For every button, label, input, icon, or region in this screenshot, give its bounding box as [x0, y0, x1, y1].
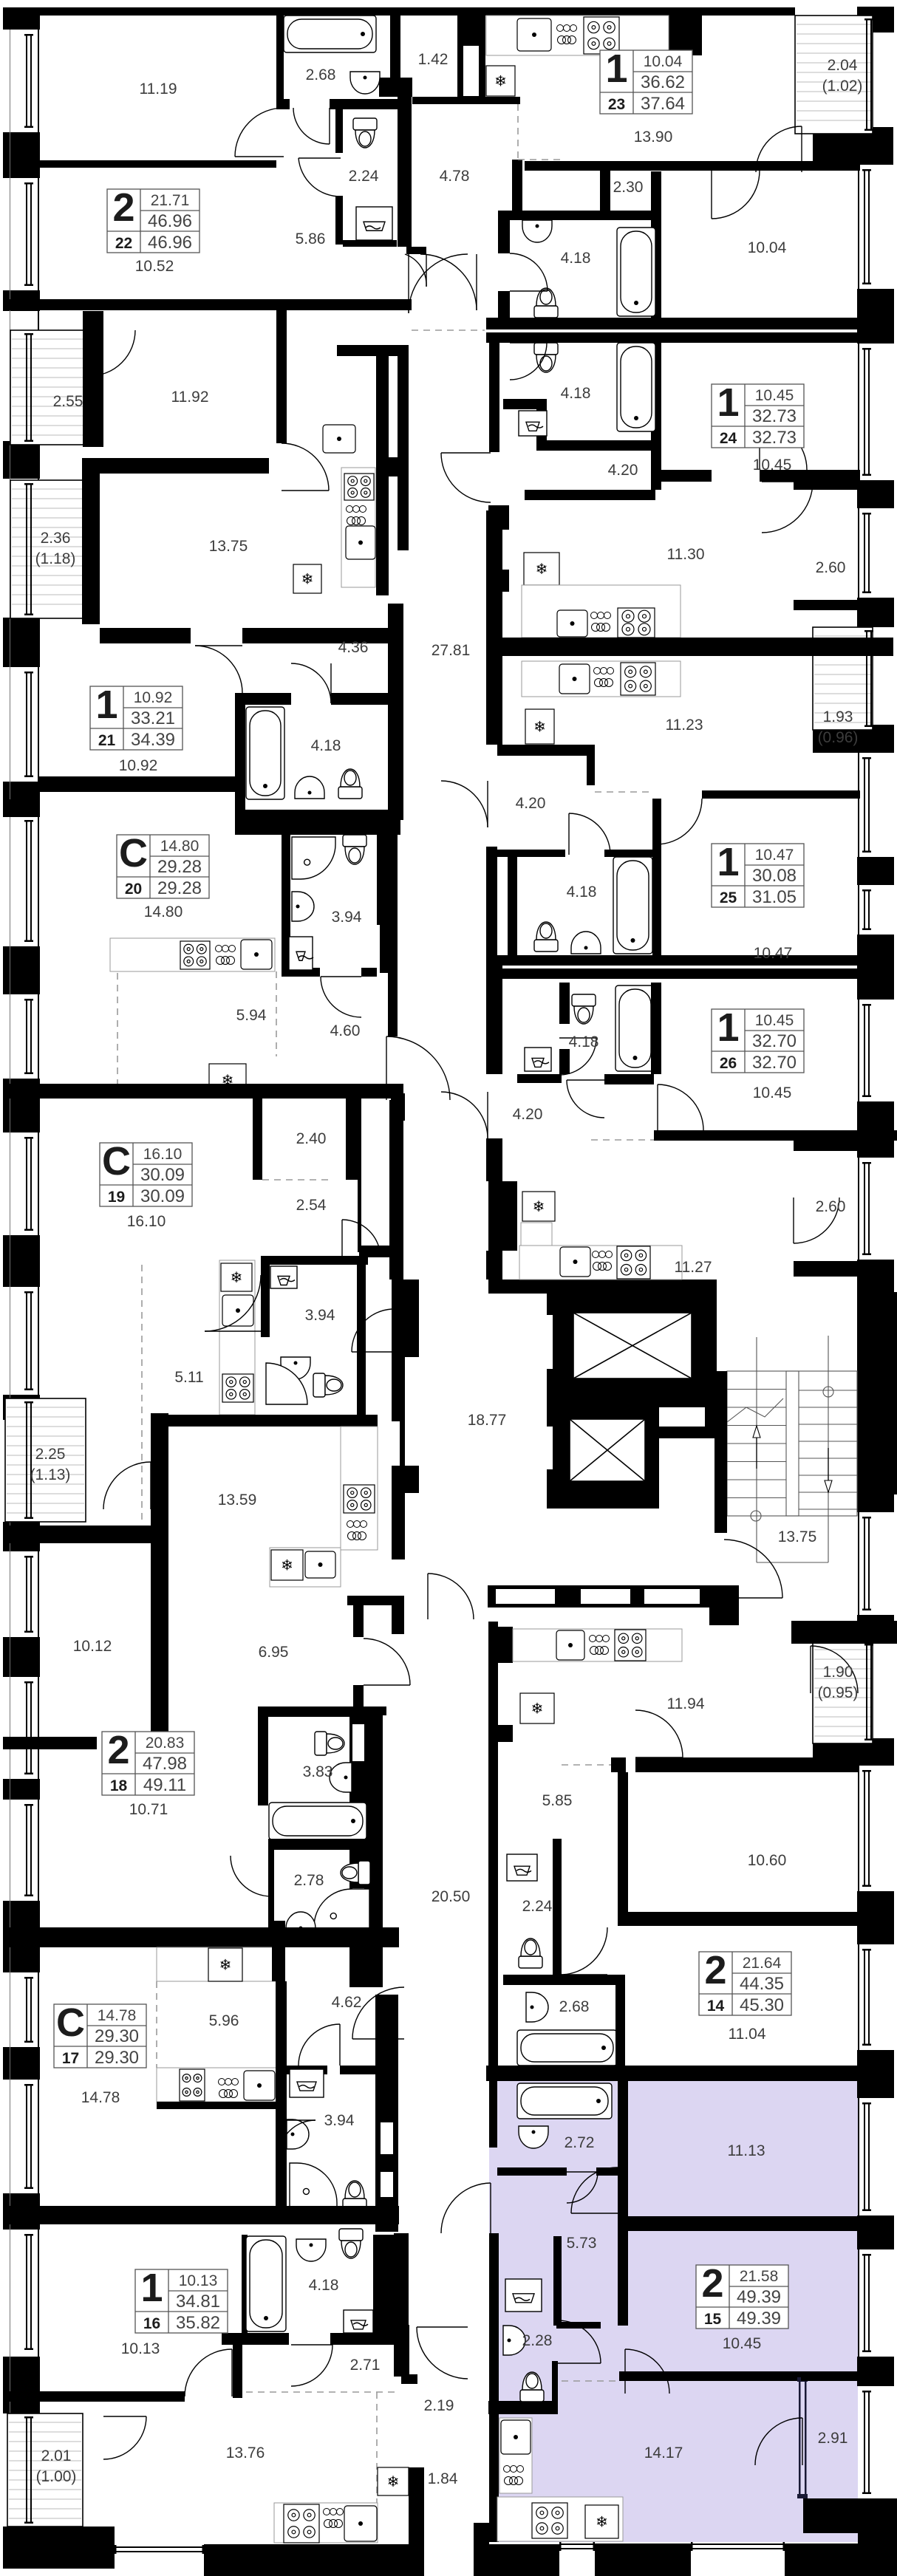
svg-text:11.19: 11.19 — [140, 81, 177, 98]
svg-text:14.78: 14.78 — [98, 2007, 137, 2024]
svg-text:C: C — [102, 1139, 131, 1183]
svg-text:13.76: 13.76 — [226, 2445, 265, 2461]
svg-text:2.40: 2.40 — [296, 1130, 327, 1147]
svg-text:22: 22 — [115, 235, 132, 252]
svg-text:20.50: 20.50 — [432, 1888, 471, 1905]
svg-text:34.39: 34.39 — [131, 730, 175, 750]
svg-text:44.35: 44.35 — [740, 1974, 784, 1994]
svg-text:5.94: 5.94 — [236, 1007, 267, 1024]
svg-text:2.60: 2.60 — [816, 559, 846, 576]
svg-text:(1.18): (1.18) — [35, 550, 76, 567]
svg-text:2.55: 2.55 — [53, 393, 83, 410]
svg-text:36.62: 36.62 — [641, 72, 685, 92]
svg-text:1: 1 — [95, 683, 117, 727]
svg-text:2.28: 2.28 — [522, 2332, 553, 2349]
svg-text:13.75: 13.75 — [778, 1528, 817, 1545]
svg-text:19: 19 — [108, 1189, 125, 1206]
svg-text:49.39: 49.39 — [737, 2309, 781, 2329]
svg-text:10.45: 10.45 — [723, 2335, 762, 2352]
svg-text:18: 18 — [110, 1777, 128, 1794]
svg-text:4.18: 4.18 — [311, 737, 341, 754]
svg-text:21.71: 21.71 — [151, 192, 190, 209]
svg-text:10.04: 10.04 — [644, 53, 683, 70]
svg-text:C: C — [56, 2001, 85, 2045]
svg-text:20.83: 20.83 — [146, 1735, 185, 1752]
svg-text:4.20: 4.20 — [608, 462, 638, 479]
svg-text:5.11: 5.11 — [174, 1369, 203, 1386]
svg-text:47.98: 47.98 — [143, 1754, 187, 1774]
svg-text:3.94: 3.94 — [305, 1307, 335, 1324]
svg-text:10.47: 10.47 — [755, 847, 794, 864]
svg-text:(1.02): (1.02) — [822, 78, 863, 95]
svg-text:3.83: 3.83 — [303, 1763, 333, 1780]
svg-text:2.24: 2.24 — [522, 1898, 553, 1915]
svg-text:10.47: 10.47 — [754, 945, 793, 962]
svg-text:❄: ❄ — [219, 1958, 232, 1974]
svg-text:5.96: 5.96 — [209, 2012, 239, 2029]
svg-text:11.30: 11.30 — [667, 546, 705, 563]
svg-text:10.45: 10.45 — [753, 457, 792, 474]
svg-text:(1.13): (1.13) — [30, 1466, 71, 1483]
svg-text:2.30: 2.30 — [613, 179, 644, 196]
svg-text:1.90: 1.90 — [823, 1664, 853, 1681]
svg-text:2: 2 — [701, 2261, 723, 2306]
svg-text:46.96: 46.96 — [148, 211, 192, 231]
svg-text:10.45: 10.45 — [755, 1012, 794, 1029]
svg-text:2: 2 — [704, 1948, 726, 1992]
svg-text:❄: ❄ — [494, 74, 507, 90]
svg-text:(0.96): (0.96) — [818, 729, 859, 746]
svg-text:4.18: 4.18 — [569, 1034, 599, 1050]
svg-text:31.05: 31.05 — [752, 887, 797, 907]
svg-text:29.28: 29.28 — [157, 878, 202, 898]
svg-text:❄: ❄ — [596, 2515, 608, 2531]
svg-text:1.84: 1.84 — [428, 2470, 458, 2487]
svg-text:17: 17 — [62, 2050, 79, 2067]
svg-text:2.54: 2.54 — [296, 1197, 327, 1214]
svg-text:29.30: 29.30 — [95, 2026, 139, 2046]
svg-text:1.42: 1.42 — [418, 51, 448, 68]
svg-text:❄: ❄ — [531, 1701, 544, 1718]
svg-text:1: 1 — [717, 840, 739, 884]
svg-text:4.18: 4.18 — [561, 250, 591, 267]
svg-text:❄: ❄ — [533, 720, 546, 736]
svg-text:11.13: 11.13 — [728, 2142, 765, 2159]
svg-text:2: 2 — [107, 1728, 129, 1772]
svg-text:5.73: 5.73 — [567, 2235, 597, 2252]
svg-text:30.09: 30.09 — [140, 1165, 185, 1185]
svg-text:14.80: 14.80 — [144, 903, 183, 920]
svg-text:30.09: 30.09 — [140, 1186, 185, 1206]
svg-text:3.94: 3.94 — [332, 909, 362, 926]
svg-text:6.95: 6.95 — [259, 1644, 289, 1661]
svg-text:2.24: 2.24 — [349, 168, 379, 185]
svg-text:27.81: 27.81 — [432, 642, 471, 659]
svg-text:14: 14 — [707, 1998, 725, 2015]
svg-text:5.85: 5.85 — [542, 1792, 573, 1809]
svg-text:10.12: 10.12 — [73, 1638, 112, 1655]
svg-text:24: 24 — [720, 430, 737, 447]
svg-text:29.28: 29.28 — [157, 857, 202, 877]
svg-text:1: 1 — [140, 2266, 163, 2310]
svg-text:1.93: 1.93 — [823, 708, 853, 725]
svg-text:4.62: 4.62 — [332, 1994, 362, 2011]
svg-text:33.21: 33.21 — [131, 708, 175, 728]
svg-text:10.45: 10.45 — [753, 1084, 792, 1101]
svg-text:14.80: 14.80 — [160, 838, 199, 855]
svg-text:11.92: 11.92 — [171, 389, 209, 406]
svg-text:❄: ❄ — [387, 2474, 400, 2490]
svg-text:(1.00): (1.00) — [36, 2468, 77, 2485]
svg-text:21: 21 — [98, 732, 116, 749]
svg-text:14.78: 14.78 — [81, 2089, 120, 2106]
svg-text:2.71: 2.71 — [350, 2357, 381, 2374]
svg-text:37.64: 37.64 — [641, 94, 685, 114]
svg-text:1: 1 — [717, 380, 739, 425]
svg-text:32.70: 32.70 — [752, 1031, 797, 1051]
svg-text:2.68: 2.68 — [559, 1998, 590, 2015]
svg-text:16.10: 16.10 — [143, 1146, 183, 1163]
svg-text:15: 15 — [704, 2311, 722, 2328]
svg-text:23: 23 — [608, 96, 625, 113]
svg-text:2: 2 — [112, 185, 134, 230]
svg-text:13.90: 13.90 — [634, 129, 673, 146]
svg-text:11.23: 11.23 — [666, 717, 703, 734]
svg-text:16.10: 16.10 — [127, 1213, 166, 1230]
svg-text:2.68: 2.68 — [306, 66, 336, 83]
svg-text:❄: ❄ — [281, 1558, 293, 1574]
svg-text:10.92: 10.92 — [134, 689, 173, 706]
svg-text:2.36: 2.36 — [41, 530, 71, 547]
svg-text:4.18: 4.18 — [561, 385, 591, 402]
svg-text:18.77: 18.77 — [468, 1412, 507, 1429]
svg-text:16: 16 — [143, 2315, 160, 2332]
svg-text:C: C — [119, 831, 148, 875]
svg-text:29.30: 29.30 — [95, 2048, 139, 2068]
svg-text:5.86: 5.86 — [296, 230, 326, 247]
svg-text:10.92: 10.92 — [119, 757, 158, 774]
svg-text:10.13: 10.13 — [179, 2272, 218, 2289]
svg-text:❄: ❄ — [536, 561, 548, 578]
svg-text:35.82: 35.82 — [176, 2313, 220, 2333]
svg-text:2.19: 2.19 — [424, 2397, 454, 2414]
svg-text:25: 25 — [720, 889, 737, 906]
svg-text:3.94: 3.94 — [324, 2112, 355, 2129]
svg-text:26: 26 — [720, 1055, 737, 1072]
svg-text:10.71: 10.71 — [129, 1801, 168, 1818]
svg-text:49.39: 49.39 — [737, 2287, 781, 2307]
svg-text:4.18: 4.18 — [309, 2277, 339, 2294]
svg-text:❄: ❄ — [231, 1270, 243, 1286]
svg-text:10.60: 10.60 — [748, 1852, 787, 1869]
svg-text:2.01: 2.01 — [41, 2447, 72, 2464]
svg-text:11.27: 11.27 — [675, 1259, 712, 1276]
svg-text:30.08: 30.08 — [752, 866, 797, 886]
svg-text:4.20: 4.20 — [516, 795, 546, 812]
svg-text:1: 1 — [717, 1005, 739, 1050]
svg-text:1: 1 — [605, 47, 627, 91]
svg-text:49.11: 49.11 — [143, 1775, 186, 1795]
svg-text:32.70: 32.70 — [752, 1053, 797, 1073]
svg-text:46.96: 46.96 — [148, 233, 192, 253]
svg-text:4.18: 4.18 — [567, 884, 597, 901]
svg-text:❄: ❄ — [301, 572, 314, 588]
svg-text:10.13: 10.13 — [121, 2340, 160, 2357]
svg-text:4.60: 4.60 — [330, 1022, 361, 1039]
svg-text:11.94: 11.94 — [667, 1695, 705, 1712]
svg-text:32.73: 32.73 — [752, 406, 797, 426]
svg-text:2.04: 2.04 — [828, 57, 858, 74]
svg-text:2.60: 2.60 — [816, 1198, 846, 1215]
svg-text:20: 20 — [125, 881, 142, 898]
svg-text:4.20: 4.20 — [513, 1106, 543, 1123]
svg-text:2.91: 2.91 — [818, 2430, 848, 2447]
svg-text:21.58: 21.58 — [740, 2268, 779, 2285]
svg-text:13.75: 13.75 — [209, 538, 248, 555]
svg-text:4.36: 4.36 — [338, 639, 369, 656]
svg-text:11.04: 11.04 — [729, 2026, 766, 2043]
svg-text:14.17: 14.17 — [644, 2445, 683, 2461]
svg-text:10.52: 10.52 — [135, 258, 174, 275]
svg-text:2.78: 2.78 — [294, 1872, 324, 1889]
svg-text:21.64: 21.64 — [743, 1955, 782, 1972]
svg-text:❄: ❄ — [533, 1199, 545, 1215]
svg-text:2.72: 2.72 — [565, 2134, 595, 2151]
svg-text:10.04: 10.04 — [748, 239, 787, 256]
svg-text:45.30: 45.30 — [740, 1995, 784, 2015]
svg-text:10.45: 10.45 — [755, 387, 794, 404]
svg-text:34.81: 34.81 — [176, 2292, 220, 2312]
svg-text:13.59: 13.59 — [218, 1492, 257, 1509]
svg-text:32.73: 32.73 — [752, 428, 797, 448]
svg-text:2.25: 2.25 — [35, 1446, 66, 1463]
svg-text:4.78: 4.78 — [440, 168, 470, 185]
svg-text:(0.95): (0.95) — [818, 1684, 859, 1701]
